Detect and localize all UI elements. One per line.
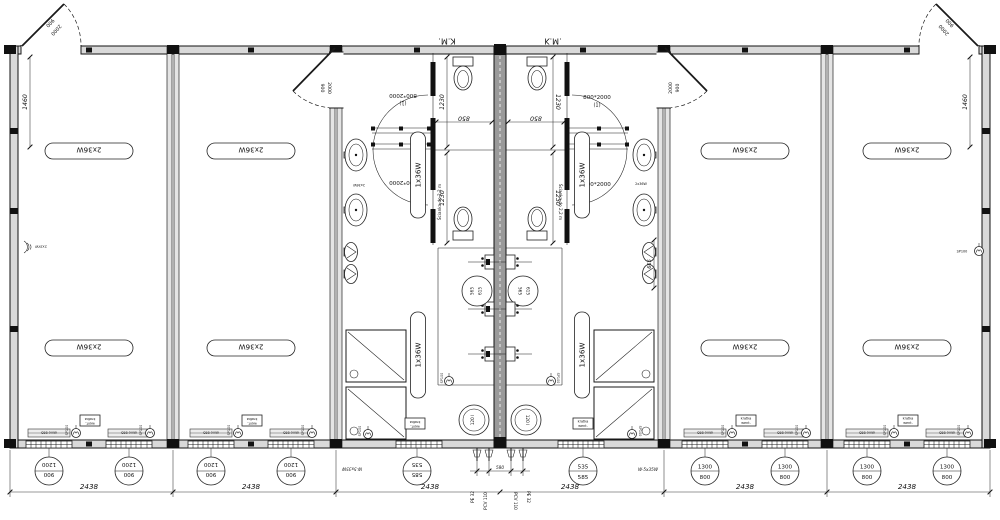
door-swing-arc [919, 4, 936, 46]
window-size-bottom: 900 [123, 471, 134, 477]
extract-fan-icon [234, 425, 243, 438]
window-size-top: 535 [411, 461, 422, 467]
svg-text:850: 850 [530, 114, 542, 121]
window-tag: okno 865 [41, 430, 57, 434]
wall-fan-label: SP100 [957, 249, 968, 253]
window-size-top: 1200 [121, 461, 136, 467]
washbasin [633, 139, 656, 171]
service-pipes: 580 PE 32 PCV 110 PCV 110 PE 32 [470, 448, 531, 510]
window-size-bottom: 800 [780, 475, 791, 481]
stall-door-size: 800*2000 [583, 95, 611, 101]
door-size-width: 900 [44, 17, 55, 28]
window-size-top: 535 [578, 465, 589, 471]
basin-light-label: 2x36W [352, 183, 364, 187]
pipe-label-pcv: PCV 110 [513, 492, 518, 510]
window-size-bottom: 900 [205, 471, 216, 477]
floorplan-drawing: 900 2000 900 2000 1460 1460 2x36W 2x36W … [0, 0, 1000, 520]
window-size-top: 1300 [860, 465, 875, 471]
light-label: 2x36W [76, 146, 101, 155]
light-label: 2x36W [894, 146, 919, 155]
extract-fan-icon [72, 425, 81, 438]
fan-label: SP100 [440, 373, 444, 384]
shower [594, 330, 654, 382]
window-tag: okno 865 [777, 430, 793, 434]
urinal [344, 265, 358, 284]
door-size-height: 2000 [668, 82, 674, 94]
wall-heater-icon [24, 241, 31, 253]
dim-stall-width: 850 [434, 114, 495, 124]
dim-text: 1460 [22, 94, 29, 110]
pipe-label-pe: PE 32 [470, 491, 475, 503]
window-size-bottom: 800 [700, 475, 711, 481]
office-module-2: 2x36W 2x36W okno 865 okno 865 1200 900 1… [188, 143, 317, 485]
window [396, 441, 442, 448]
sanitary-module-4: K.M. 900 2000 1230 1230 850 Ścianka do 2… [506, 37, 707, 486]
partition-note: Ścianka do 2,2 m [437, 184, 442, 220]
left-wall [10, 46, 18, 448]
window-size-bottom: 800 [942, 475, 953, 481]
divider-wall-5-6 [821, 46, 833, 448]
dim-stall-width: 850 [506, 114, 567, 124]
entry-door-module-6: 900 2000 [919, 4, 979, 55]
window-size-bottom: 800 [862, 475, 873, 481]
cable-label: W-5x35W [341, 467, 362, 472]
window-size-top: 1200 [283, 461, 298, 467]
pipe-label-pcv: PCV 110 [483, 492, 488, 510]
window [844, 441, 890, 448]
window-size-top: 1200 [41, 461, 56, 467]
floorplan-svg: 900 2000 900 2000 1460 1460 2x36W 2x36W … [0, 0, 1000, 520]
extract-fan-icon [964, 425, 973, 438]
svg-text:665: 665 [647, 259, 653, 269]
light-label: 2x36W [238, 343, 263, 352]
light-label: 2x36W [76, 343, 101, 352]
toilet [527, 207, 547, 240]
fan-label: SP100 [358, 426, 362, 437]
vent-box-label: kratka [578, 419, 589, 423]
light-label: 2x36W [894, 343, 919, 352]
extract-fan-icon [364, 426, 373, 439]
office-module-6: 2x36W 2x36W okno 865 okno 865 1300 800 1… [844, 143, 984, 485]
fan-label: SP100 [795, 425, 799, 436]
vent-box-label: went. [741, 421, 750, 425]
window [106, 441, 152, 448]
fan-label: SP100 [301, 425, 305, 436]
vent-box-label: went. [903, 421, 912, 425]
window-size-top: 1200 [203, 461, 218, 467]
module-width-dim: 2438 [242, 482, 261, 491]
light-label: 1x36W [414, 342, 423, 367]
dim-1460-right: 1460 [962, 55, 972, 150]
svg-text:615: 615 [478, 287, 483, 295]
window [924, 441, 970, 448]
extract-fan-icon [547, 373, 556, 386]
light-label: 2x36W [238, 146, 263, 155]
window-tag: okno 865 [121, 430, 137, 434]
extract-fan-icon [890, 425, 899, 438]
washbasin [344, 194, 367, 226]
window-tag: okno 865 [283, 430, 299, 434]
shower [594, 387, 654, 439]
svg-text:1230: 1230 [439, 94, 446, 110]
svg-text:120 l: 120 l [525, 415, 530, 426]
walls [4, 44, 996, 448]
light-label: 2x36W [732, 146, 757, 155]
vent-box-label: went. [85, 422, 94, 426]
vent-box-label: kratka [410, 420, 421, 424]
door-size-width: 900 [945, 17, 956, 28]
extract-fan-icon [728, 425, 737, 438]
water-heater: 120 l [511, 405, 541, 435]
stall-door-size: 800*2000 [389, 92, 417, 98]
entry-door-module-1: 900 2000 [21, 4, 81, 55]
window [682, 441, 728, 448]
room-label-km: K.M. [438, 37, 455, 46]
svg-text:565: 565 [518, 287, 523, 295]
window [268, 441, 314, 448]
vent-box-label: kratka [247, 417, 258, 421]
door-size-width: 900 [319, 84, 325, 93]
vent-box-label: kratka [903, 417, 914, 421]
extract-fan-icon [308, 425, 317, 438]
fan-label: SP100 [556, 373, 560, 384]
cable-label: W-5x35W [638, 467, 659, 472]
fan-label: SP100 [638, 426, 642, 437]
fan-label: SP100 [139, 425, 143, 436]
right-wall [982, 46, 990, 448]
partition-note: Ścianka do 2,2 m [558, 184, 563, 220]
extract-fan-icon [445, 373, 454, 386]
vent-box-label: went. [410, 425, 419, 429]
window-size-top: 1300 [940, 465, 955, 471]
window-size-bottom: 900 [285, 471, 296, 477]
module-width-dim: 2438 [80, 482, 99, 491]
door-swing-arc [64, 4, 81, 46]
vent-box-label: kratka [85, 417, 96, 421]
toilet [527, 57, 547, 90]
window-size-top: 1300 [778, 465, 793, 471]
vent-box-label: went. [578, 424, 587, 428]
basin-light-label: 2x36W [635, 182, 647, 186]
fan-label: SP100 [883, 425, 887, 436]
window-size-bottom: 900 [43, 471, 54, 477]
dim-text: 1460 [962, 94, 969, 110]
module-width-dim: 2438 [736, 482, 755, 491]
fan-label: SP100 [227, 425, 231, 436]
door-size-width: 900 [675, 84, 681, 93]
divider-wall-1-2 [167, 46, 179, 448]
urinal [344, 243, 358, 262]
water-heater: 120 l [459, 405, 489, 435]
office-module-5: 2x36W 2x36W okno 865 okno 865 1300 800 1… [682, 143, 811, 485]
light-label: 1x36W [578, 342, 587, 367]
window-tag: okno 865 [859, 430, 875, 434]
svg-text:850: 850 [458, 114, 470, 121]
window-tag: okno 865 [203, 430, 219, 434]
shower [346, 330, 406, 382]
room-label-km: K.M. [544, 37, 561, 46]
fan-label: SP100 [721, 425, 725, 436]
window-size-bottom: 585 [411, 471, 422, 477]
vent-box-label: kratka [741, 417, 752, 421]
vent-box-label: went. [247, 422, 256, 426]
window [188, 441, 234, 448]
window [558, 441, 604, 448]
light-label: 1x36W [578, 162, 587, 187]
office-module-1: 2x36W 2x36W okno 865 okno 865 1200 900 1… [24, 143, 155, 485]
window [26, 441, 72, 448]
extract-fan-icon [802, 425, 811, 438]
svg-text:615: 615 [526, 287, 531, 295]
window-tag: okno 865 [939, 430, 955, 434]
window-size-top: 1300 [698, 465, 713, 471]
door-size-height: 2000 [326, 82, 332, 94]
toilet [453, 57, 473, 90]
door-module-2-3: 900 2000 [293, 48, 344, 108]
pipe-spacing-dim: 580 [496, 465, 504, 470]
extract-fan-icon [628, 426, 637, 439]
toilet [453, 207, 473, 240]
bottom-dimension-line: 2438 2438 2438 2438 2438 2438 [8, 450, 993, 497]
fan-label: SP100 [65, 425, 69, 436]
fan-label: SP100 [957, 425, 961, 436]
svg-text:565: 565 [470, 287, 475, 295]
dim-1460-left: 1460 [22, 55, 32, 150]
stall-door-mark: (1) [593, 103, 600, 109]
extract-fan-icon [146, 425, 155, 438]
module-width-dim: 2438 [898, 482, 917, 491]
shower [346, 387, 406, 439]
wall-heater-label: 2x2kW [35, 244, 47, 248]
module-width-dim: 2438 [561, 482, 580, 491]
svg-text:120 l: 120 l [470, 415, 475, 426]
module-width-dim: 2438 [421, 482, 440, 491]
stall-door-mark: (1) [399, 100, 406, 106]
window [762, 441, 808, 448]
washbasin [633, 194, 656, 226]
washbasin [344, 139, 367, 171]
pipe-label-pe: PE 32 [526, 491, 531, 503]
window-size-bottom: 585 [578, 475, 589, 481]
light-label: 1x36W [414, 162, 423, 187]
window-tag: okno 865 [697, 430, 713, 434]
svg-text:1230: 1230 [554, 94, 561, 110]
door-module-4-5: 900 2000 [657, 48, 708, 108]
light-label: 2x36W [732, 343, 757, 352]
